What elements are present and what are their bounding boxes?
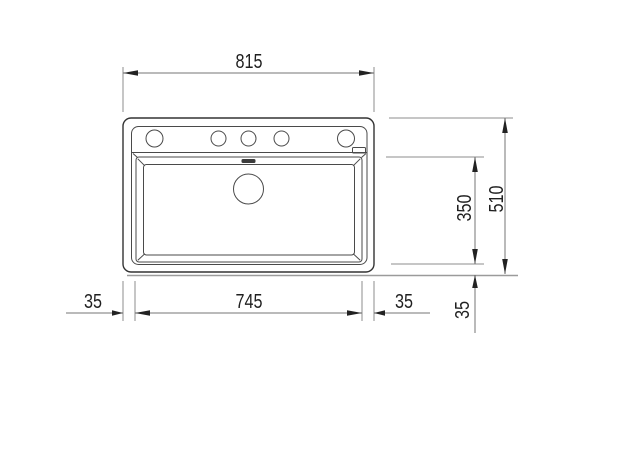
overflow-slot [242, 159, 256, 163]
dimension-labels: 815 510 350 35 745 35 35 [84, 51, 508, 319]
label-offset-left: 35 [84, 291, 102, 313]
bowl-corner-bevel-bl [138, 254, 145, 260]
label-offset-bottom: 35 [452, 301, 474, 319]
drawing-canvas: 815 510 350 35 745 35 35 [0, 0, 632, 451]
label-overall-width: 815 [236, 51, 263, 73]
label-bowl-depth: 350 [454, 195, 476, 222]
bowl-corner-bevel-tl [138, 159, 145, 166]
bowl-corner-bevel-br [353, 254, 360, 260]
arrowheads [112, 70, 508, 316]
bowl-corner-bevel-tr [353, 159, 360, 166]
arrow-745-left [135, 310, 150, 315]
tap-hole-4 [274, 131, 289, 146]
arrow-815-right [359, 70, 374, 76]
tap-hole-3 [241, 131, 256, 146]
deck-bevel-left [133, 154, 138, 158]
sink-rim-inner-edge [132, 127, 368, 265]
bowl-inner-edge [144, 165, 355, 256]
arrow-35-right [374, 310, 385, 315]
drain-hole [234, 174, 264, 204]
arrow-35v-up [472, 275, 478, 288]
bowl-outer-edge [136, 157, 362, 262]
sink-dimension-diagram: 815 510 350 35 745 35 35 [0, 0, 632, 451]
extension-lines [123, 67, 513, 321]
label-bowl-width: 745 [236, 291, 263, 313]
arrow-510-top [502, 118, 508, 133]
arrow-350-top [472, 157, 478, 172]
tap-hole-5 [338, 130, 355, 147]
label-offset-right: 35 [395, 291, 413, 313]
label-overall-depth: 510 [486, 186, 508, 213]
arrow-350-bottom [472, 249, 478, 264]
deck-bevel-right [362, 154, 367, 158]
sink-outer-edge [123, 118, 374, 272]
tap-hole-1 [146, 130, 163, 147]
arrow-510-bottom [502, 259, 508, 274]
arrow-815-left [123, 70, 138, 76]
arrow-745-right [347, 310, 362, 315]
tap-hole-2 [211, 131, 226, 146]
arrow-35-left [112, 310, 123, 315]
